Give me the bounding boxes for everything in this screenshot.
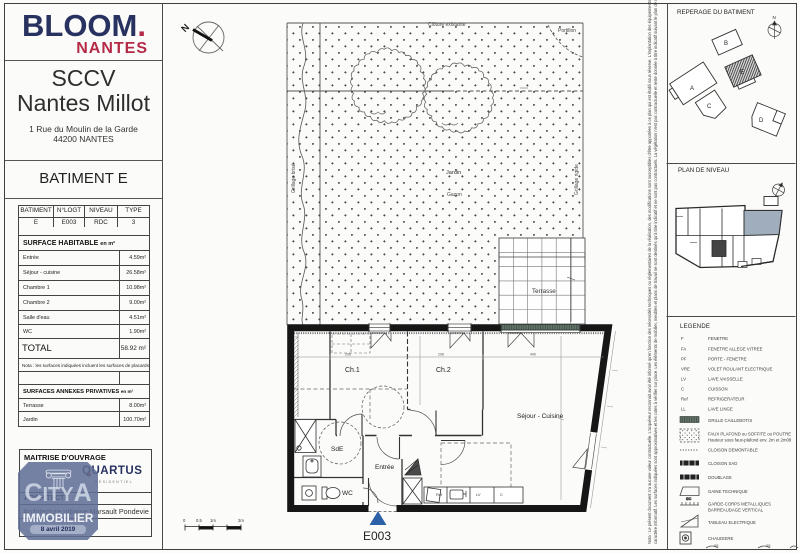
svg-text:Séjour - Cuisine: Séjour - Cuisine	[517, 413, 564, 420]
svg-text:LL: LL	[681, 406, 686, 411]
svg-text:B: B	[724, 41, 728, 47]
svg-text:GAINE TECHNIQUE: GAINE TECHNIQUE	[708, 489, 748, 494]
svg-text:PORTE - FENETRE: PORTE - FENETRE	[708, 357, 747, 362]
svg-text:E003: E003	[363, 529, 391, 543]
svg-text:Jardin: Jardin	[446, 170, 461, 176]
svg-text:FAUX PLAFOND ou SOFFITE ou POU: FAUX PLAFOND ou SOFFITE ou POUTRE	[708, 432, 791, 437]
svg-text:Entrée: Entrée	[375, 464, 395, 471]
svg-text:05: 05	[766, 543, 771, 548]
svg-text:caractère informatif. Les surf: caractère informatif. Les surfaces indiq…	[653, 0, 658, 544]
svg-text:LV: LV	[681, 377, 686, 382]
svg-text:Clôture existante: Clôture existante	[428, 22, 466, 28]
svg-text:E: E	[740, 70, 744, 76]
svg-text:Nota : Le présent document n'a: Nota : Le présent document n'a aucune va…	[647, 0, 652, 544]
svg-text:05: 05	[714, 543, 719, 548]
svg-text:N: N	[773, 15, 776, 20]
svg-text:Portillon: Portillon	[558, 28, 576, 34]
svg-text:BARREAUDAGE VERTICAL: BARREAUDAGE VERTICAL	[708, 508, 764, 513]
svg-text:VOLET ROULANT ELECTRIQUE: VOLET ROULANT ELECTRIQUE	[708, 367, 772, 372]
svg-text:Ch.2: Ch.2	[436, 367, 451, 374]
svg-text:C: C	[681, 387, 684, 392]
svg-text:CLOISON DEMONTABLE: CLOISON DEMONTABLE	[708, 448, 758, 453]
svg-text:GARDE-CORPS METALLIQUES: GARDE-CORPS METALLIQUES	[708, 502, 771, 507]
svg-text:Ch.1: Ch.1	[345, 367, 360, 374]
svg-text:C: C	[707, 104, 712, 110]
svg-text:FENETRE: FENETRE	[708, 336, 728, 341]
svg-text:VRE: VRE	[681, 367, 690, 372]
svg-text:LAVE VAISSELLE: LAVE VAISSELLE	[708, 377, 743, 382]
svg-text:WC: WC	[342, 490, 353, 497]
svg-text:GRILLE CAILLEBOTIS: GRILLE CAILLEBOTIS	[708, 418, 752, 423]
svg-text:LV: LV	[476, 492, 481, 497]
svg-text:CHAUDIERE: CHAUDIERE	[708, 536, 733, 541]
svg-text:CLOISON SAD: CLOISON SAD	[708, 461, 737, 466]
svg-text:LAVE LINGE: LAVE LINGE	[708, 406, 733, 411]
svg-text:Ref: Ref	[436, 492, 443, 497]
svg-text:REPERAGE DU BATIMENT: REPERAGE DU BATIMENT	[677, 9, 755, 16]
svg-text:0: 0	[183, 518, 186, 523]
svg-text:Grillage rigide: Grillage rigide	[574, 164, 580, 195]
svg-text:D: D	[759, 118, 764, 124]
svg-text:A: A	[690, 86, 694, 92]
svg-text:Gazon: Gazon	[447, 192, 462, 198]
svg-text:LEGENDE: LEGENDE	[680, 324, 710, 330]
svg-text:0.5: 0.5	[196, 518, 202, 523]
svg-text:REFRIGERATEUR: REFRIGERATEUR	[708, 396, 744, 401]
svg-text:PLAN DE NIVEAU: PLAN DE NIVEAU	[678, 167, 729, 174]
svg-text:SdE: SdE	[331, 446, 344, 453]
svg-text:FENETRE ALLEGE VITREE: FENETRE ALLEGE VITREE	[708, 346, 763, 351]
svg-text:FA: FA	[681, 346, 686, 351]
svg-text:Ref: Ref	[681, 396, 688, 401]
svg-text:TABLEAU ELECTRIQUE: TABLEAU ELECTRIQUE	[708, 520, 756, 525]
svg-text:Terrasse: Terrasse	[532, 288, 556, 295]
svg-text:2m: 2m	[238, 518, 244, 523]
svg-text:296: 296	[345, 353, 351, 357]
svg-text:DOUBLAGE: DOUBLAGE	[708, 475, 732, 480]
svg-text:PF: PF	[681, 357, 687, 362]
svg-text:F: F	[681, 336, 684, 341]
svg-text:C: C	[500, 492, 503, 497]
svg-text:296: 296	[438, 353, 444, 357]
svg-text:CUISSON: CUISSON	[708, 387, 728, 392]
svg-text:GC: GC	[686, 497, 692, 501]
svg-text:440: 440	[530, 353, 536, 357]
svg-text:1m: 1m	[210, 518, 216, 523]
svg-text:N: N	[179, 22, 192, 35]
svg-text:Grillage brisé: Grillage brisé	[291, 163, 297, 193]
svg-text:Hauteur sous faux-plafond env.: Hauteur sous faux-plafond env. 2m et 2m0…	[708, 438, 792, 443]
